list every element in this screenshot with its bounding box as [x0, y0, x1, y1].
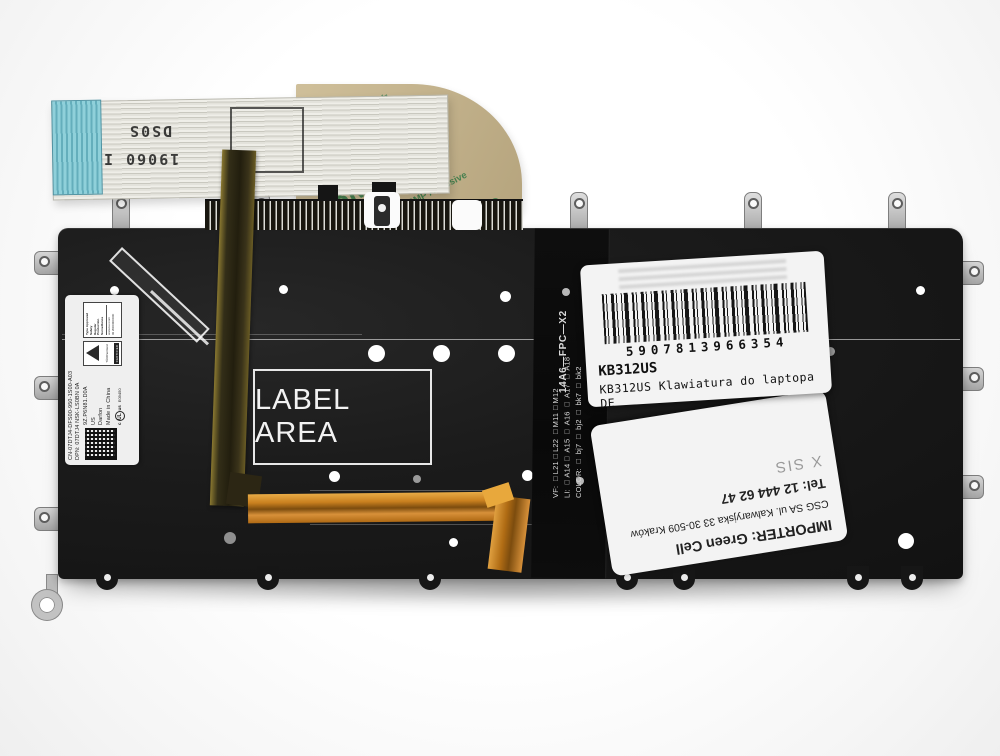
screw-hole [898, 533, 914, 549]
screw-hole [449, 538, 458, 547]
plate-seam [310, 490, 500, 491]
barcode-label: 5907813966354 KB312US KB312US Klawiatura… [580, 251, 832, 408]
tuv-triangle-box: TÜVRheinland CERTIFIED [83, 341, 122, 366]
label-area-stencil: LABEL AREA [253, 369, 432, 465]
tuv-id: ID 2000000000 [112, 305, 116, 335]
tab-hole [969, 480, 980, 491]
tab-hole [39, 256, 50, 267]
bump-hole [104, 574, 111, 581]
bump-hole [624, 574, 631, 581]
ul-mark: c UL us E09450 [115, 369, 125, 425]
tab-hole [39, 381, 50, 392]
screw-hole [500, 291, 511, 302]
hook-ring [32, 590, 62, 620]
screw-hole [329, 471, 340, 482]
bump-hole [909, 574, 916, 581]
bump-hole [427, 574, 434, 581]
screw-hole [224, 532, 236, 544]
tuv-name: TÜVRheinland [105, 344, 109, 362]
ul-logo: UL [115, 411, 125, 421]
tab-hole [892, 198, 903, 209]
ffc-marking-bottom: 19060 I [102, 150, 179, 168]
tab-hole [39, 512, 50, 523]
tuv-certified-bar: CERTIFIED [114, 343, 119, 363]
connector-tab-hole [378, 204, 386, 212]
dell-origin: Made in China [106, 369, 113, 425]
tab-hole [116, 198, 127, 209]
tab-hole [748, 198, 759, 209]
dell-model-line: 9Z.P6N81.D0A [83, 369, 90, 425]
fpc-spec-marking: VF: □L21□L22 □M11□M12 LI: □A14□ A15 □ A1… [550, 293, 585, 498]
datamatrix-code [85, 428, 117, 460]
screw-hole [368, 345, 385, 362]
tab-hole [969, 266, 980, 277]
screw-hole [413, 475, 421, 483]
dell-dpn-line: DPN: 07DTJ4 NSK-LS0BN 0A [75, 300, 82, 460]
ffc-marking-top: DS0S [128, 122, 172, 140]
screw-hole [433, 345, 450, 362]
product-photo-keyboard-backplate: 3M 200MP Adhesive 467MP 3M 467MP 200MP A… [0, 0, 1000, 756]
bump-hole [855, 574, 862, 581]
screw-hole [916, 286, 925, 295]
dell-region: US [91, 369, 98, 425]
bump-hole [681, 574, 688, 581]
fpc-vf-line: VF: □L21□L22 □M11□M12 [550, 293, 562, 498]
dell-serial-line: CN-07DTJ4-DFS00-950-1S00-A03 [68, 300, 75, 460]
tape-cutout [452, 200, 482, 230]
connector-block [318, 185, 338, 201]
screw-hole [110, 286, 119, 295]
tuv-triangle-icon [86, 346, 99, 362]
tuv-approval-line: Surveillance [101, 305, 105, 335]
fpc-li-line: LI: □A14□ A15 □ A16 □ A17 □ A18 [562, 293, 574, 498]
ffc-blue-stiffener [51, 100, 103, 196]
label-area-text: LABEL AREA [255, 384, 430, 450]
plate-shadow [70, 580, 950, 606]
tuv-approval-box: Type Approved Safety Regular Production … [83, 302, 122, 338]
kapton-flex-horizontal [248, 492, 506, 524]
tab-hole [969, 372, 980, 383]
ul-prefix: c [117, 422, 122, 425]
dell-maker: Darfon [98, 369, 105, 425]
dell-part-label: CN-07DTJ4-DFS00-950-1S00-A03 DPN: 07DTJ4… [65, 295, 139, 465]
screw-hole [498, 345, 515, 362]
screw-hole [279, 285, 288, 294]
tab-hole [574, 198, 585, 209]
ul-suffix: us [117, 405, 122, 410]
bump-hole [265, 574, 272, 581]
ul-file-number: E09450 [117, 388, 122, 402]
